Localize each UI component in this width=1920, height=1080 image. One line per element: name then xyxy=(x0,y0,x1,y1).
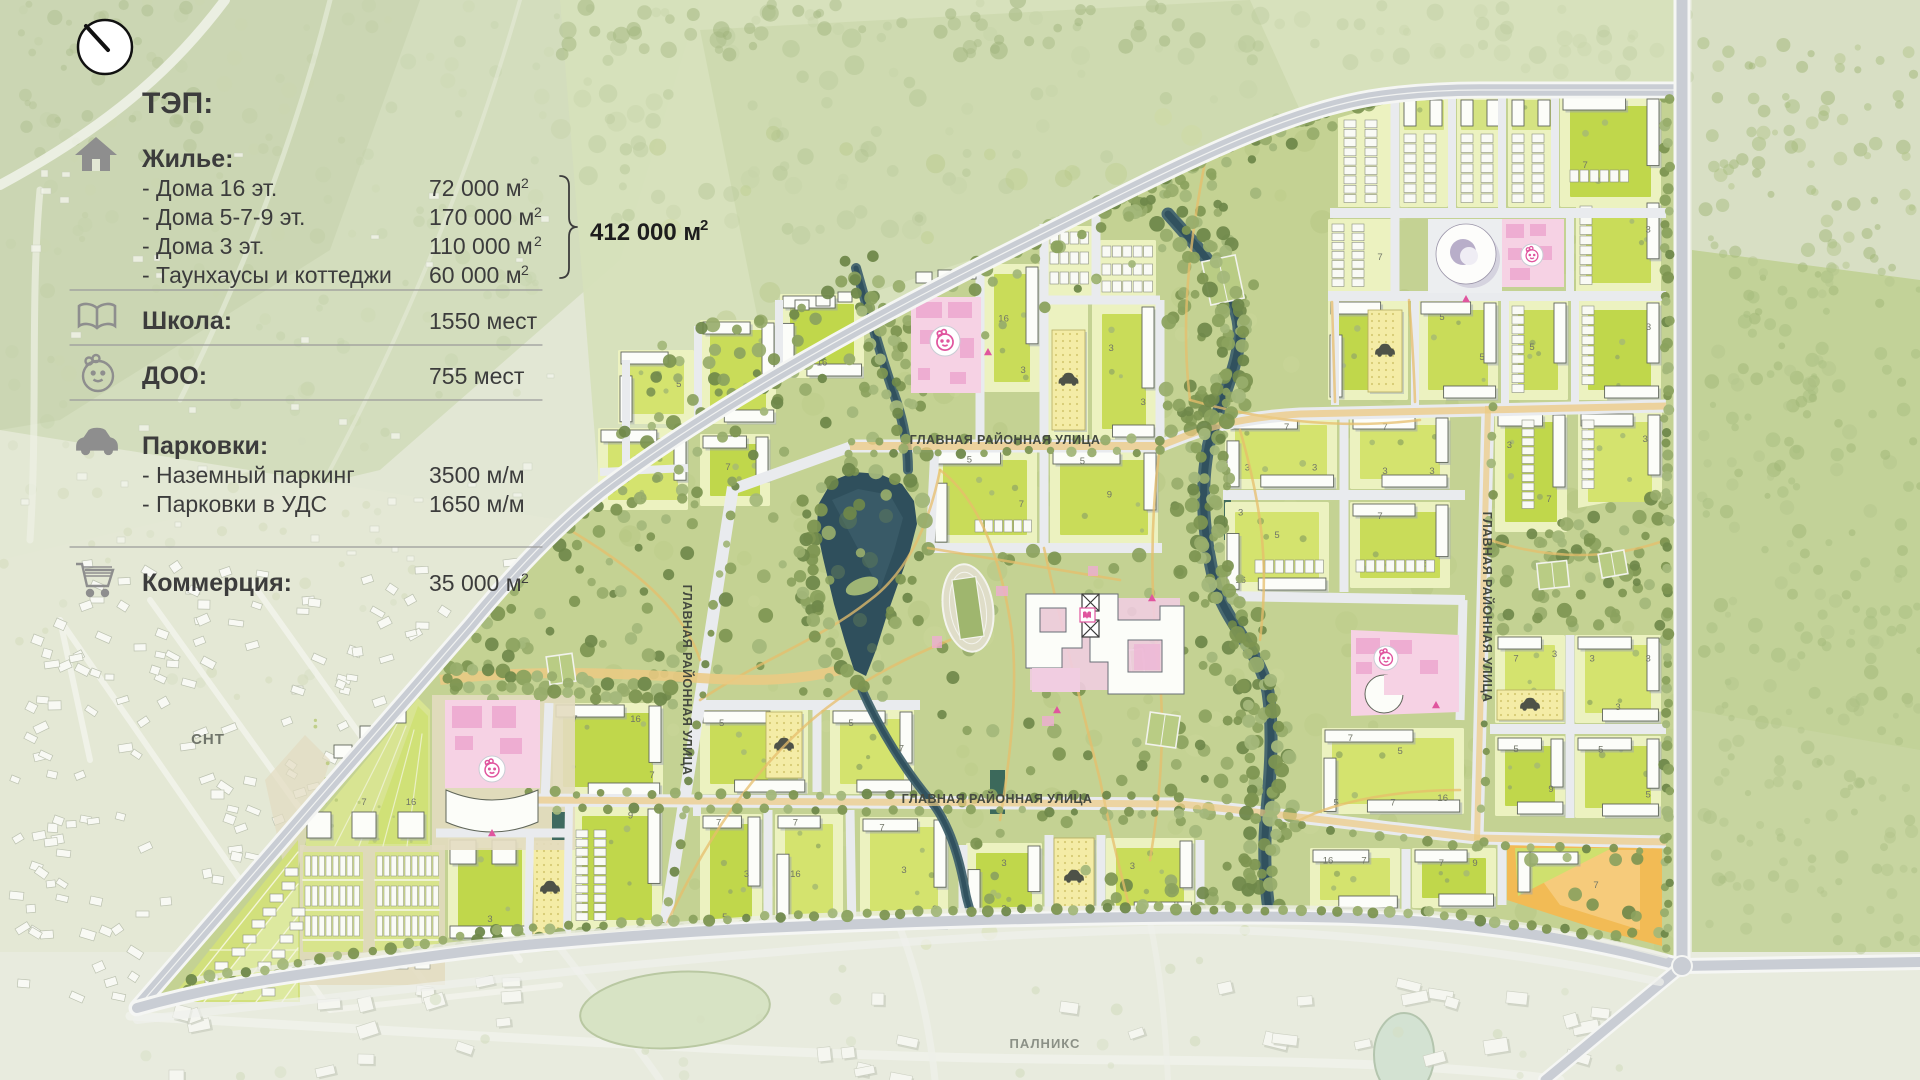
svg-text:9: 9 xyxy=(1107,490,1112,501)
svg-text:3: 3 xyxy=(1429,466,1434,477)
svg-text:ГЛАВНАЯ РАЙОННАЯ УЛИЦА: ГЛАВНАЯ РАЙОННАЯ УЛИЦА xyxy=(910,432,1101,447)
svg-text:ГЛАВНАЯ РАЙОННАЯ УЛИЦА: ГЛАВНАЯ РАЙОННАЯ УЛИЦА xyxy=(1480,512,1495,703)
svg-text:3: 3 xyxy=(1382,466,1387,477)
svg-text:60 000 м: 60 000 м xyxy=(429,262,522,288)
svg-text:2: 2 xyxy=(521,175,529,191)
svg-text:3: 3 xyxy=(1312,463,1317,474)
svg-text:16: 16 xyxy=(1323,856,1334,867)
svg-text:7: 7 xyxy=(1583,160,1588,171)
svg-text:- Дома 5-7-9 эт.: - Дома 5-7-9 эт. xyxy=(142,204,305,230)
svg-text:2: 2 xyxy=(521,262,529,278)
svg-text:16: 16 xyxy=(406,797,417,808)
svg-text:7: 7 xyxy=(725,462,730,473)
svg-text:35 000 м: 35 000 м xyxy=(429,570,522,596)
svg-text:3: 3 xyxy=(1646,225,1651,236)
svg-text:2: 2 xyxy=(521,570,529,586)
svg-text:5: 5 xyxy=(967,454,972,465)
svg-text:ГЛАВНАЯ РАЙОННАЯ УЛИЦА: ГЛАВНАЯ РАЙОННАЯ УЛИЦА xyxy=(680,585,695,776)
svg-text:5: 5 xyxy=(1479,352,1484,363)
svg-text:5: 5 xyxy=(1598,744,1603,755)
svg-text:7: 7 xyxy=(1513,653,1518,664)
svg-text:ТЭП:: ТЭП: xyxy=(142,87,213,120)
svg-text:3: 3 xyxy=(1141,397,1146,408)
svg-text:3: 3 xyxy=(1109,343,1114,354)
svg-text:3: 3 xyxy=(1552,649,1557,660)
svg-text:5: 5 xyxy=(1397,746,1402,757)
svg-text:5: 5 xyxy=(1439,312,1444,323)
svg-text:1650 м/м: 1650 м/м xyxy=(429,491,525,517)
svg-text:Парковки:: Парковки: xyxy=(142,432,268,460)
svg-text:7: 7 xyxy=(1019,499,1024,510)
svg-text:3: 3 xyxy=(1021,365,1026,376)
svg-text:110 000 м: 110 000 м xyxy=(429,233,533,259)
svg-text:72 000 м: 72 000 м xyxy=(429,175,522,201)
svg-text:3: 3 xyxy=(901,865,906,876)
svg-text:9: 9 xyxy=(1548,784,1553,795)
svg-text:3: 3 xyxy=(1646,322,1651,333)
svg-text:7: 7 xyxy=(1377,252,1382,263)
svg-text:- Парковки в УДС: - Парковки в УДС xyxy=(142,491,327,517)
svg-text:3: 3 xyxy=(1590,653,1595,664)
svg-text:3: 3 xyxy=(1238,508,1243,519)
svg-text:16: 16 xyxy=(1437,793,1448,804)
svg-text:7: 7 xyxy=(1593,880,1598,891)
svg-text:- Дома 16 эт.: - Дома 16 эт. xyxy=(142,175,277,201)
svg-text:7: 7 xyxy=(879,822,884,833)
svg-text:3: 3 xyxy=(1001,858,1006,869)
svg-text:170 000 м: 170 000 м xyxy=(429,204,534,230)
svg-text:3: 3 xyxy=(1130,861,1135,872)
svg-text:3: 3 xyxy=(487,914,492,925)
svg-text:- Дома 3 эт.: - Дома 3 эт. xyxy=(142,233,264,259)
svg-text:3500 м/м: 3500 м/м xyxy=(429,462,525,488)
svg-text:Жилье:: Жилье: xyxy=(141,145,233,173)
svg-text:ГЛАВНАЯ РАЙОННАЯ УЛИЦА: ГЛАВНАЯ РАЙОННАЯ УЛИЦА xyxy=(902,791,1093,806)
svg-text:9: 9 xyxy=(1472,858,1477,869)
svg-text:16: 16 xyxy=(630,714,641,725)
svg-text:7: 7 xyxy=(649,770,654,781)
svg-text:7: 7 xyxy=(1439,858,1444,869)
svg-text:7: 7 xyxy=(361,797,366,808)
svg-text:7: 7 xyxy=(1546,494,1551,505)
svg-text:Коммерция:: Коммерция: xyxy=(142,569,292,597)
svg-text:ДОО:: ДОО: xyxy=(142,362,207,390)
svg-text:3: 3 xyxy=(1643,434,1648,445)
svg-text:5: 5 xyxy=(719,718,724,729)
svg-text:- Наземный паркинг: - Наземный паркинг xyxy=(142,462,355,488)
svg-text:3: 3 xyxy=(1507,440,1512,451)
svg-text:5: 5 xyxy=(1080,456,1085,467)
svg-text:2: 2 xyxy=(534,204,542,220)
svg-text:1550 мест: 1550 мест xyxy=(429,308,538,334)
svg-text:7: 7 xyxy=(1390,797,1395,808)
svg-text:412 000 м: 412 000 м xyxy=(590,219,701,246)
svg-text:3: 3 xyxy=(744,869,749,880)
svg-text:7: 7 xyxy=(793,818,798,829)
svg-text:755 мест: 755 мест xyxy=(429,363,525,389)
svg-text:- Таунхаусы и коттеджи: - Таунхаусы и коттеджи xyxy=(142,262,392,288)
svg-text:2: 2 xyxy=(700,217,708,234)
svg-text:5: 5 xyxy=(1513,744,1518,755)
svg-text:3: 3 xyxy=(1645,653,1650,664)
svg-text:7: 7 xyxy=(1377,511,1382,522)
svg-text:ПАЛНИКС: ПАЛНИКС xyxy=(1010,1036,1081,1051)
svg-text:5: 5 xyxy=(848,718,853,729)
svg-text:2: 2 xyxy=(534,233,542,249)
svg-text:7: 7 xyxy=(1348,733,1353,744)
svg-text:СНТ: СНТ xyxy=(191,731,225,748)
svg-text:7: 7 xyxy=(1284,422,1289,433)
svg-text:3: 3 xyxy=(1615,702,1620,713)
svg-text:5: 5 xyxy=(1529,342,1534,353)
svg-text:Школа:: Школа: xyxy=(142,307,232,335)
svg-text:5: 5 xyxy=(1645,790,1650,801)
svg-text:5: 5 xyxy=(1274,530,1279,541)
svg-text:7: 7 xyxy=(1361,856,1366,867)
svg-text:16: 16 xyxy=(790,869,801,880)
